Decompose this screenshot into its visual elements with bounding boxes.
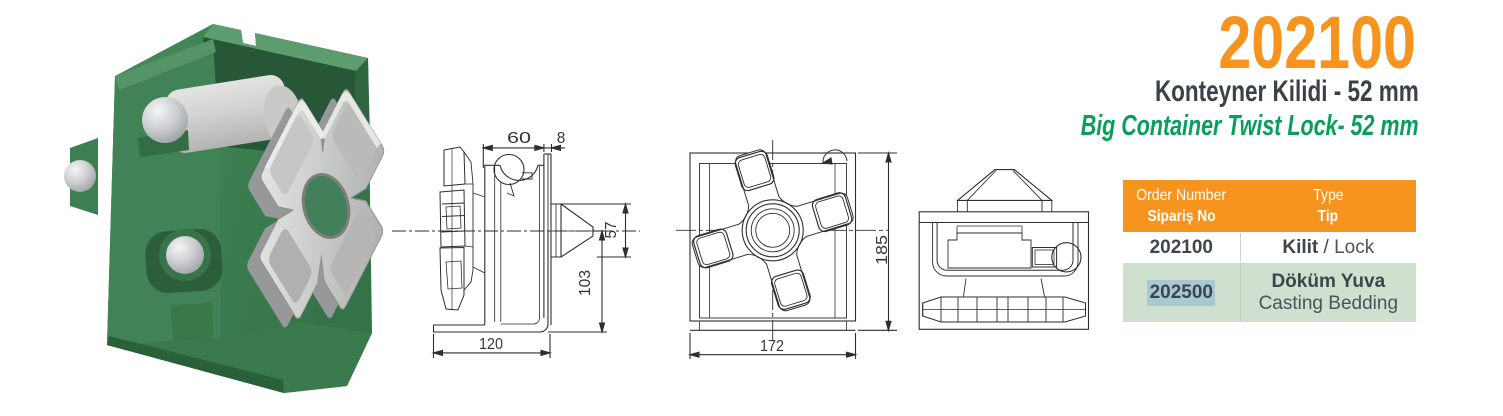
svg-text:103: 103 (577, 270, 594, 296)
svg-text:60: 60 (507, 130, 532, 147)
svg-text:8: 8 (557, 130, 566, 147)
svg-text:185: 185 (874, 235, 891, 265)
svg-text:120: 120 (479, 336, 503, 353)
svg-text:57: 57 (603, 222, 620, 239)
svg-text:172: 172 (760, 338, 784, 355)
